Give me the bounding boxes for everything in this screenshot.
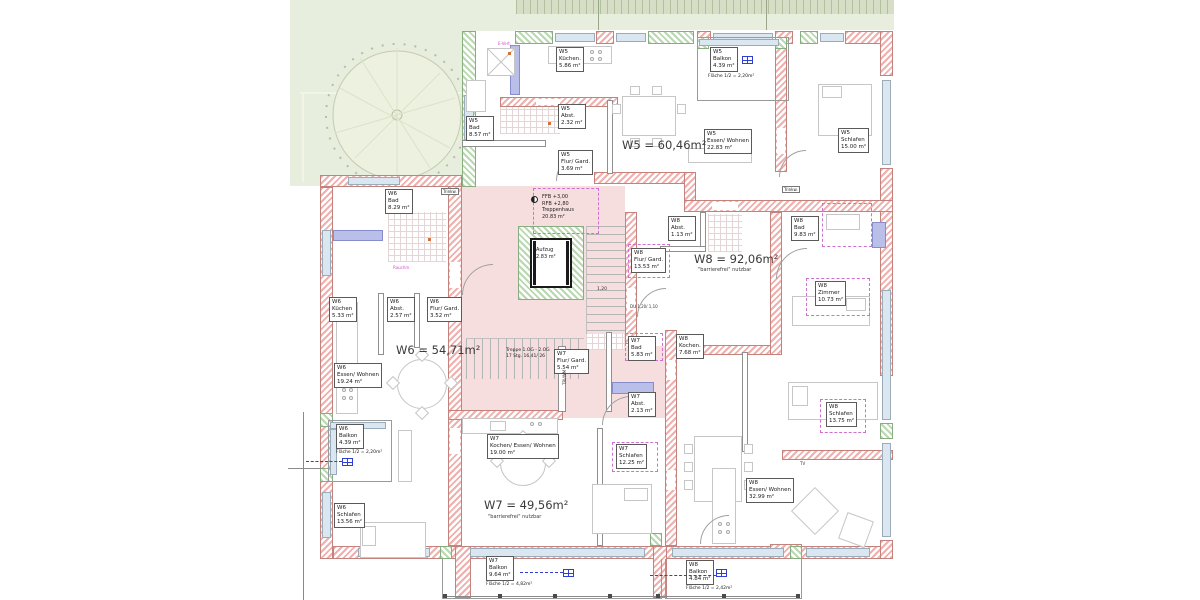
window (882, 290, 891, 420)
apartment-total-w8: W8 = 92,06m² (694, 252, 778, 266)
room-name: Zimmer (818, 290, 843, 297)
window (882, 80, 891, 165)
elevator-area: 2.83 m² (536, 254, 556, 261)
room-area: 15.00 m² (841, 144, 866, 151)
door-opening (667, 470, 675, 490)
apartment-total-w6: W6 = 54,71m² (396, 343, 480, 357)
rail-post (796, 594, 800, 598)
stairs-steps: 17 Stg. 16,41/ 26 (506, 354, 550, 360)
room-label-w5-balkon: W5 Balkon 4.39 m² (710, 47, 738, 72)
dim-label: 1,20 (597, 287, 607, 292)
room-unit: W5 (561, 152, 590, 159)
kitchen-counter (462, 418, 558, 434)
room-unit: W8 (818, 283, 843, 290)
room-area: 4.39 m² (713, 63, 735, 70)
room-area: 3.52 m² (430, 313, 459, 320)
balcony-w7 (442, 559, 662, 599)
room-label-w6-schlafen: W6 Schlafen 13.56 m² (334, 503, 365, 528)
bath-fixture (872, 222, 886, 248)
shower-dim-label: DU 1,20/ 1,10 (630, 305, 658, 310)
chair (630, 86, 640, 95)
tile-floor-w6-bad (388, 212, 446, 262)
room-label-w8-kueche: W8 Kochen. 7.68 m² (676, 334, 704, 359)
floor-plan-canvas: W5 Bad 8.57 m² W5 Küchen. 5.86 m² W5 Abs… (0, 0, 1200, 600)
room-area: 7.68 m² (679, 350, 701, 357)
room-name: Bad (794, 225, 816, 232)
room-area: 4.39 m² (339, 440, 361, 447)
room-unit: W7 (631, 338, 653, 345)
room-name: Kochen. (679, 343, 701, 350)
room-area: 1.13 m² (671, 232, 693, 239)
hedge-line (766, 0, 767, 30)
room-name: Abst. (671, 225, 693, 232)
dashed-boundary (822, 203, 872, 247)
room-unit: W7 (631, 394, 653, 401)
room-label-w6-abst: W6 Abst. 2.57 m² (387, 297, 415, 322)
elevator-door-bar (566, 241, 569, 285)
wall-segment (880, 540, 893, 559)
window (616, 33, 646, 42)
rail-post (722, 594, 726, 598)
wall-segment (596, 31, 614, 44)
room-area: 8.29 m² (388, 205, 410, 212)
room-unit: W8 (689, 562, 711, 569)
room-name: Balkon (489, 565, 511, 572)
room-area: 13.53 m² (634, 264, 663, 271)
room-label-w5-essen: W5 Essen/ Wohnen 22.83 m² (704, 129, 752, 154)
chair (684, 480, 693, 490)
balcony-half-area: Fläche 1/2 = 2,42m² (686, 586, 732, 591)
room-unit: W6 (337, 365, 379, 372)
elevator-label: Aufzug 2.83 m² (536, 247, 556, 260)
marker-dot (428, 238, 431, 241)
chair (652, 86, 662, 95)
room-area: 12.25 m² (619, 460, 644, 467)
room-label-w8-essen: W8 Essen/ Wohnen 32.99 m² (746, 478, 794, 503)
room-label-w8-abst: W8 Abst. 1.13 m² (668, 216, 696, 241)
hob-burner (342, 388, 346, 392)
hob-burner (598, 50, 602, 54)
partition-wall (606, 332, 612, 412)
plumbing-wall (333, 230, 383, 241)
room-area: 2.57 m² (390, 313, 412, 320)
room-unit: W8 (749, 480, 791, 487)
marker-dot (548, 122, 551, 125)
pillow (822, 86, 842, 98)
room-name: Schlafen (619, 453, 644, 460)
rail-post (443, 594, 447, 598)
room-label-w7-flur: W7 Flur/ Gard. 5.54 m² (554, 349, 589, 374)
wall-segment-green (790, 546, 802, 559)
wall-segment-green (648, 31, 694, 44)
room-unit: W6 (430, 299, 459, 306)
door-opening (450, 262, 460, 288)
room-area: 4.84 m² (689, 576, 711, 583)
room-unit: W7 (489, 558, 511, 565)
hob-burner (598, 57, 602, 61)
balcony-symbol-icon (742, 56, 753, 64)
window (882, 443, 891, 537)
level-marker-icon (531, 196, 538, 203)
balcony-symbol-icon (716, 569, 727, 577)
room-name: Essen/ Wohnen (707, 138, 749, 145)
room-unit: W5 (559, 49, 581, 56)
room-label-w5-flur: W5 Flur/ Gard. 3.69 m² (558, 150, 593, 175)
pillow (624, 488, 648, 501)
room-unit: W5 (561, 106, 583, 113)
room-unit: W8 (671, 218, 693, 225)
room-name: Abst. (631, 401, 653, 408)
room-label-w7-abst: W7 Abst. 2.13 m² (628, 392, 656, 417)
room-name: Flur/ Gard. (430, 306, 459, 313)
room-label-w7-schlafen: W7 Schlafen 12.25 m² (616, 444, 647, 469)
room-label-w6-bad: W6 Bad 8.29 m² (385, 189, 413, 214)
stair-flight (586, 226, 625, 334)
room-area: 5.86 m² (559, 63, 581, 70)
room-name: Bad (469, 125, 491, 132)
leader-line (520, 572, 563, 573)
door-opening (712, 202, 738, 210)
sink (490, 421, 506, 431)
balcony-glazing (699, 39, 779, 46)
room-label-w8-balkon: W8 Balkon 4.84 m² (686, 560, 714, 585)
pillow (362, 526, 376, 546)
stairs-label: Treppe 1.OG - 2.OG 17 Stg. 16,41/ 26 (506, 348, 550, 360)
room-unit: W8 (829, 404, 854, 411)
apartment-total-w7: W7 = 49,56m² (484, 498, 568, 512)
rail-post (608, 594, 612, 598)
rail-post (553, 594, 557, 598)
chair (684, 462, 693, 472)
wall-segment-green (880, 423, 893, 439)
room-label-w6-kueche: W6 Küchen 5.33 m² (329, 297, 357, 322)
room-unit: W5 (713, 49, 735, 56)
room-label-w5-schlafen: W5 Schlafen 15.00 m² (838, 128, 869, 153)
planting-strip (516, 0, 894, 14)
room-label-w8-zimmer: W8 Zimmer 10.73 m² (815, 281, 846, 306)
trinkw-label: Trinkw. (782, 186, 800, 193)
washer-label: TRI/WM (563, 370, 568, 385)
window (322, 230, 331, 276)
boundary-line (303, 412, 304, 600)
room-name: Kochen/ Essen/ Wohnen (490, 443, 556, 450)
stairwell-area: 20.83 m² (542, 214, 574, 221)
room-area: 10.73 m² (818, 297, 843, 304)
room-area: 19.24 m² (337, 379, 379, 386)
room-label-w5-bad: W5 Bad 8.57 m² (466, 116, 494, 141)
room-label-w8-schlafen: W8 Schlafen 13.75 m² (826, 402, 857, 427)
balcony-symbol-icon (563, 569, 574, 577)
trinkw-label: Trinkw. (441, 188, 459, 195)
room-unit: W6 (332, 299, 354, 306)
wall-segment-green (515, 31, 553, 44)
room-area: 13.56 m² (337, 519, 362, 526)
room-area: 8.57 m² (469, 132, 491, 139)
room-label-w7-balkon: W7 Balkon 9.64 m² (486, 556, 514, 581)
apartment-note-w8: "barrierefrei" nutzbar (698, 267, 751, 273)
round-table (397, 359, 447, 409)
chair (744, 444, 753, 454)
room-name: Essen/ Wohnen (749, 487, 791, 494)
wall-segment-green (800, 31, 818, 44)
stairs-run: Treppe 1.OG - 2.OG (506, 348, 550, 354)
wall-segment (625, 212, 637, 344)
room-area: 2.32 m² (561, 120, 583, 127)
room-label-w8-flur: W8 Flur/ Gard. 13.53 m² (631, 248, 666, 273)
balcony-symbol-icon (342, 458, 353, 466)
room-label-w6-essen: W6 Essen/ Wohnen 19.24 m² (334, 363, 382, 388)
room-label-w5-abst: W5 Abst. 2.32 m² (558, 104, 586, 129)
room-name: Flur/ Gard. (561, 159, 590, 166)
room-unit: W5 (707, 131, 749, 138)
apartment-total-w5: W5 = 60,46m² (622, 138, 706, 152)
sofa (398, 430, 412, 482)
door-opening (536, 99, 560, 105)
window (820, 33, 844, 42)
room-name: Bad (388, 198, 410, 205)
room-area: 13.75 m² (829, 418, 854, 425)
room-unit: W7 (490, 436, 556, 443)
chair (684, 444, 693, 454)
wall-segment (770, 212, 782, 355)
room-unit: W6 (390, 299, 412, 306)
dining-table (622, 96, 676, 136)
tile-floor-w8-flur (708, 214, 742, 252)
room-label-w7-kochen: W7 Kochen/ Essen/ Wohnen 19.00 m² (487, 434, 559, 459)
window (672, 548, 784, 557)
stairwell-label: FFB +3,00 RFB +2,80 Treppenhaus 20.83 m² (542, 194, 574, 220)
hob-burner (530, 422, 534, 426)
hob-burner (538, 422, 542, 426)
room-label-w8-bad: W8 Bad 9.83 m² (791, 216, 819, 241)
room-unit: W5 (469, 118, 491, 125)
balcony-half-area: Fläche 1/2 = 4,82m² (486, 582, 532, 587)
partition-wall (742, 352, 748, 452)
room-name: Balkon (339, 433, 361, 440)
balcony-half-area: Fläche 1/2 = 2,20m² (336, 450, 382, 455)
tile-floor-landing (586, 334, 624, 350)
room-area: 3.69 m² (561, 166, 590, 173)
hedge-line (598, 0, 599, 30)
window (322, 492, 331, 538)
partition-wall (462, 140, 546, 147)
room-unit: W7 (557, 351, 586, 358)
room-unit: W5 (841, 130, 866, 137)
room-unit: W7 (619, 446, 644, 453)
room-unit: W8 (794, 218, 816, 225)
wall-segment (782, 450, 893, 460)
evert-label: E-Vert. (498, 42, 511, 47)
room-area: 5.83 m² (631, 352, 653, 359)
room-label-w5-kueche: W5 Küchen. 5.86 m² (556, 47, 584, 72)
room-name: Essen/ Wohnen (337, 372, 379, 379)
tv-label: TV (800, 462, 805, 467)
balcony-rail (442, 596, 800, 597)
wall-segment-green (650, 533, 662, 546)
room-name: Abst. (390, 306, 412, 313)
leader-line (650, 575, 716, 576)
door-opening (777, 128, 785, 154)
balcony-half-area: Fläche 1/2 = 2,20m² (708, 74, 754, 79)
apartment-note-w7: "barrierefrei" nutzbar (488, 514, 541, 520)
window (348, 177, 400, 185)
room-name: Schlafen (829, 411, 854, 418)
room-name: Abst. (561, 113, 583, 120)
hob-burner (590, 50, 594, 54)
chair (677, 104, 686, 114)
wall-segment (880, 31, 893, 76)
room-area: 32.99 m² (749, 494, 791, 501)
room-name: Küchen (332, 306, 354, 313)
partition-wall (414, 293, 420, 348)
room-name: Balkon (713, 56, 735, 63)
rail-post (498, 594, 502, 598)
rail-post (656, 594, 660, 598)
partition-wall (378, 293, 384, 355)
bathtub (466, 80, 486, 112)
garden-strip (516, 14, 894, 30)
room-unit: W6 (388, 191, 410, 198)
room-label-w7-bad: W7 Bad 5.83 m² (628, 336, 656, 361)
room-name: Schlafen (337, 512, 362, 519)
room-unit: W8 (679, 336, 701, 343)
wall-segment-green (440, 546, 452, 559)
window (806, 548, 870, 557)
hob-burner (590, 57, 594, 61)
room-unit: W8 (634, 250, 663, 257)
marker-dot (508, 52, 511, 55)
room-name: Schlafen (841, 137, 866, 144)
room-name: Flur/ Gard. (557, 358, 586, 365)
room-area: 2.13 m² (631, 408, 653, 415)
room-name: Bad (631, 345, 653, 352)
room-label-w6-flur: W6 Flur/ Gard. 3.52 m² (427, 297, 462, 322)
window (555, 33, 595, 42)
door-opening (450, 428, 460, 454)
boundary-line (288, 468, 322, 469)
hob-burner (349, 388, 353, 392)
door-opening (667, 360, 675, 380)
room-area: 22.83 m² (707, 145, 749, 152)
wall-segment (448, 186, 462, 546)
partition-wall (700, 212, 706, 250)
stairwell-name: Treppenhaus (542, 207, 574, 214)
room-area: 19.00 m² (490, 450, 556, 457)
hob-burner (342, 396, 346, 400)
room-label-w6-balkon: W6 Balkon 4.39 m² (336, 424, 364, 449)
rauchm-label: Rauchm. (393, 266, 411, 271)
room-unit: W6 (339, 426, 361, 433)
room-area: 9.64 m² (489, 572, 511, 579)
room-area: 5.33 m² (332, 313, 354, 320)
room-unit: W6 (337, 505, 362, 512)
leader-line (306, 461, 342, 462)
room-area: 9.83 m² (794, 232, 816, 239)
elevator-name: Aufzug (536, 247, 556, 254)
room-name: Flur/ Gard. (634, 257, 663, 264)
hob-burner (349, 396, 353, 400)
room-name: Küchen. (559, 56, 581, 63)
pillow (792, 386, 808, 406)
chair (744, 462, 753, 472)
chair (612, 104, 621, 114)
